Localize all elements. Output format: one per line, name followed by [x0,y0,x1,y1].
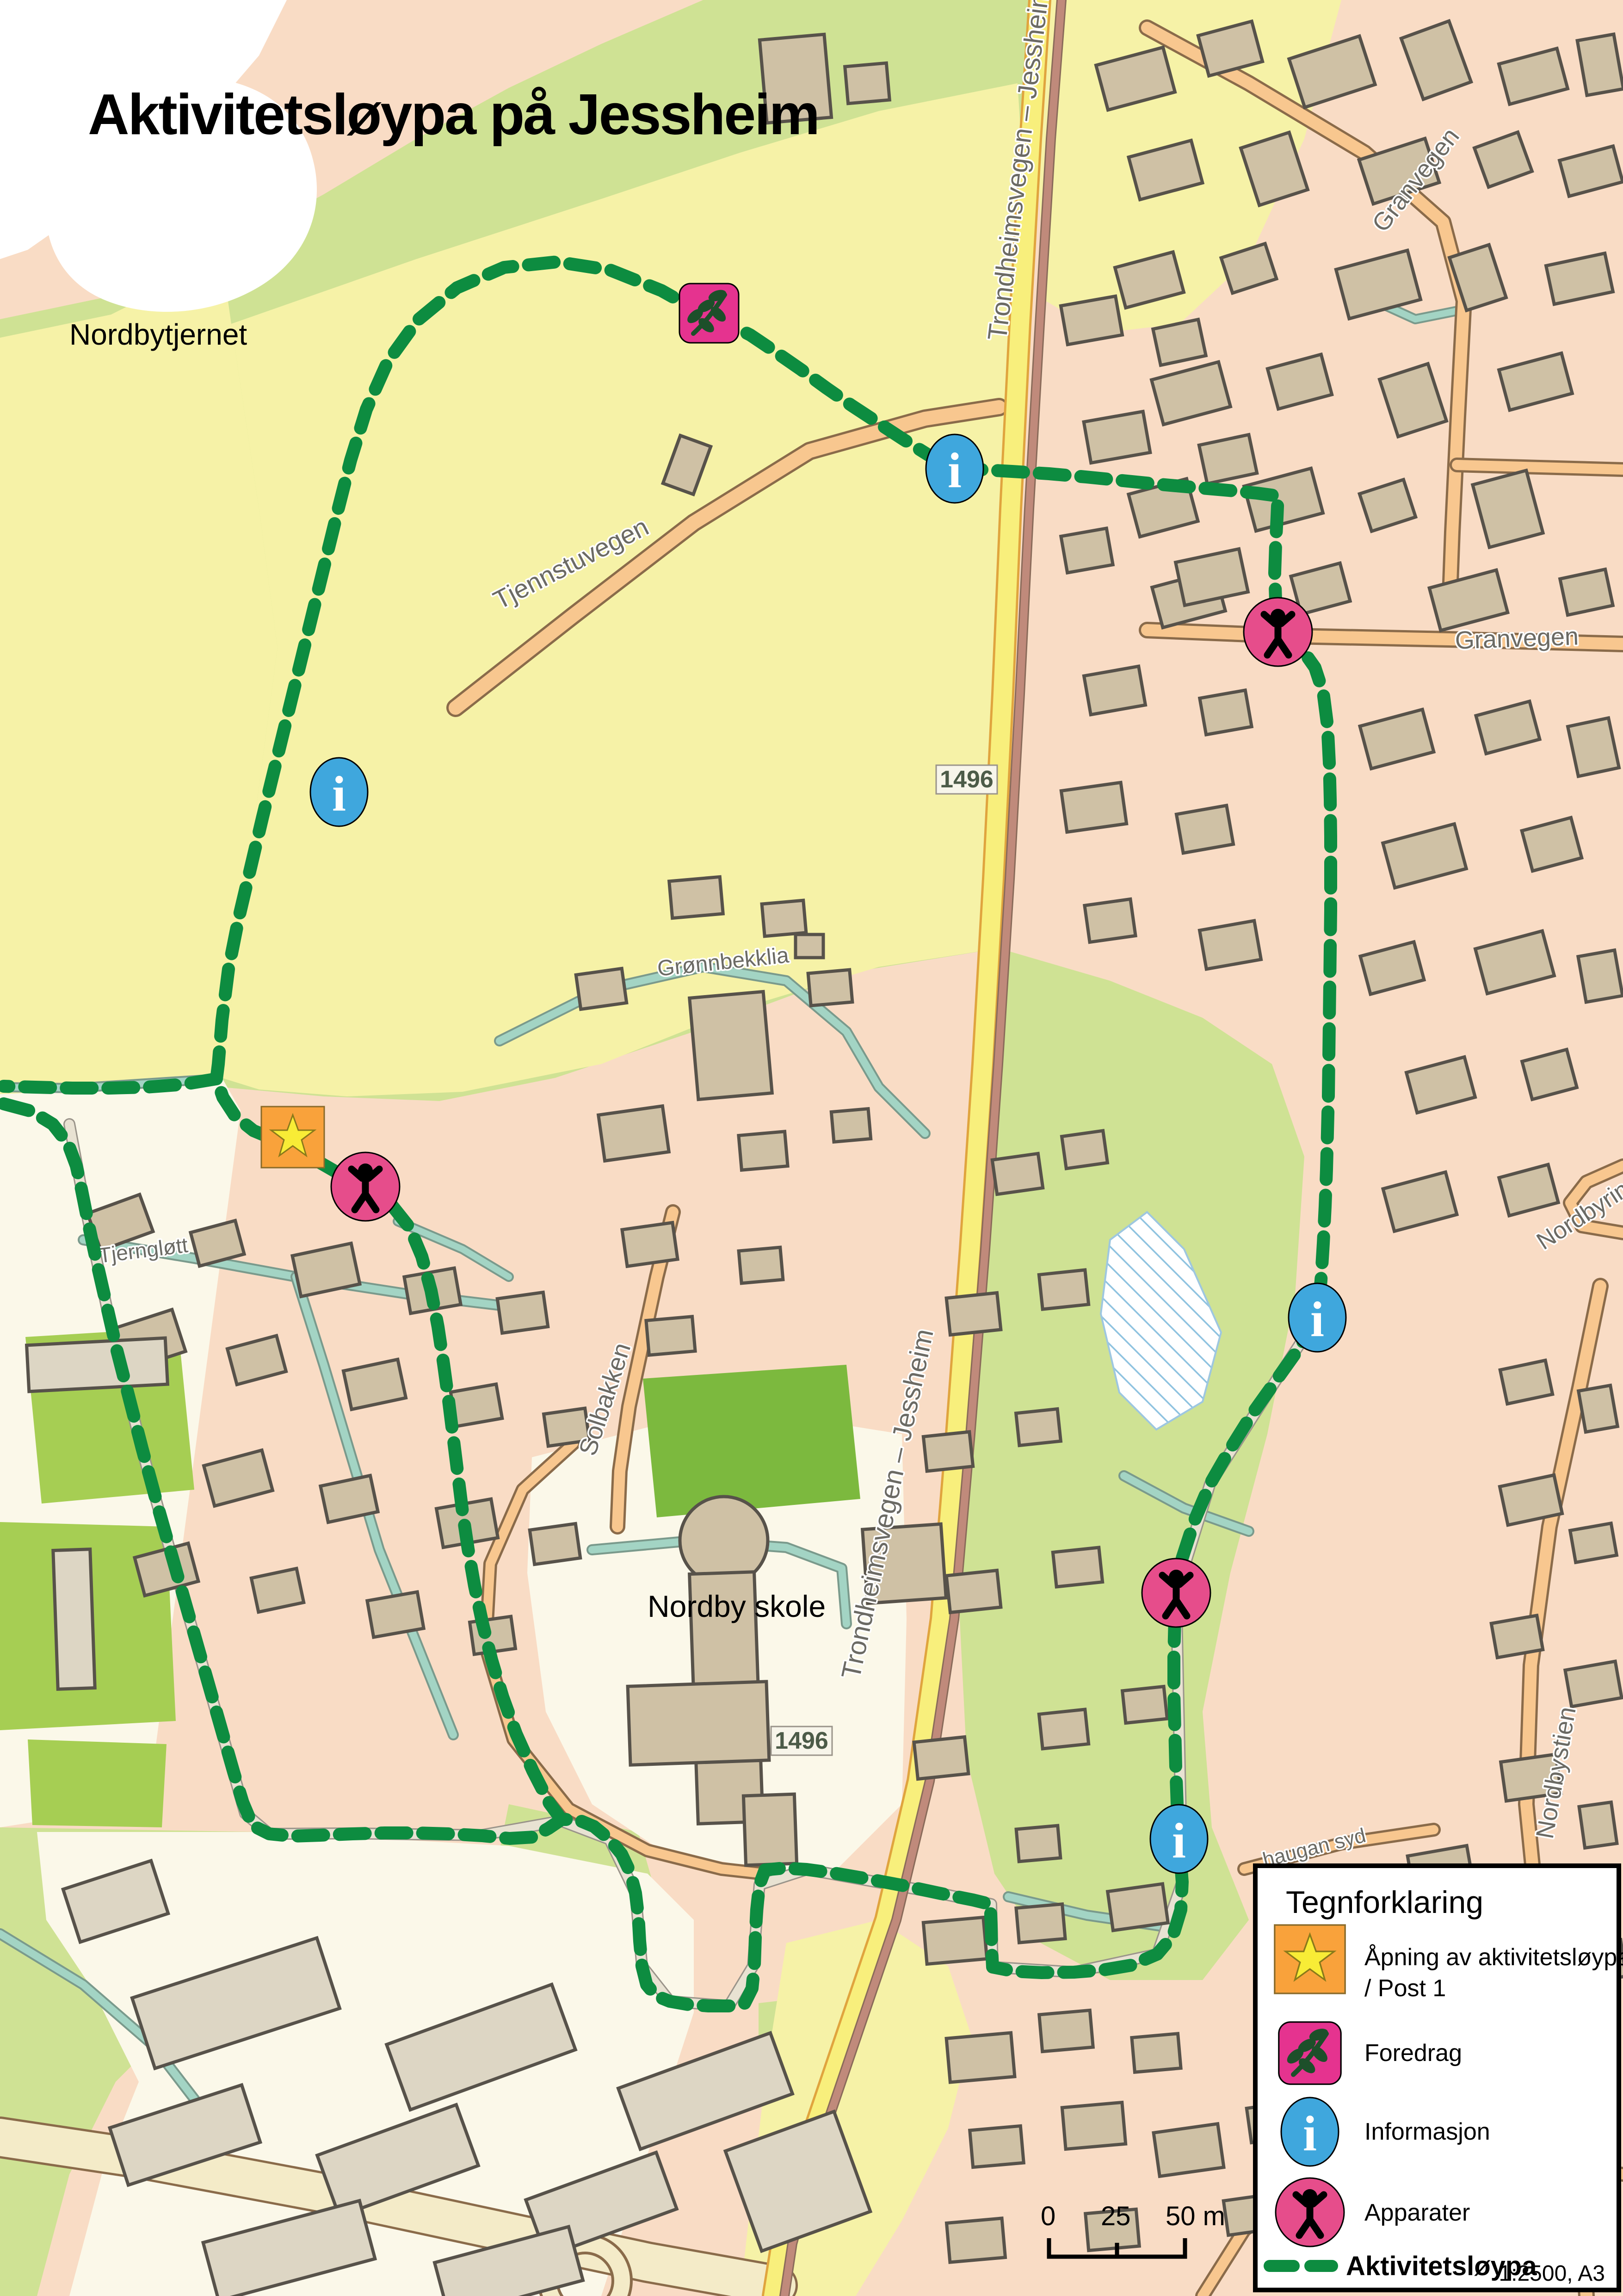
building [1084,411,1150,463]
building [1568,718,1619,776]
building [947,2218,1006,2262]
star-icon [261,1107,324,1168]
scale-25: 25 [1101,2201,1131,2231]
legend-icon-star [1275,1925,1345,1993]
legend-label-star-1: Åpning av aktivitetsløypa [1364,1944,1623,1971]
building [251,1568,303,1612]
building [1491,1615,1543,1658]
legend-label-info: Informasjon [1364,2118,1490,2145]
building [530,1523,580,1564]
legend-icon-leaf [1279,2022,1341,2084]
building [1123,1686,1167,1723]
building [1199,434,1257,483]
info-icon: i [1281,2098,1339,2166]
building [1200,921,1261,969]
leaf-icon [1279,2022,1341,2084]
building [1053,1547,1102,1587]
building [923,1918,987,1964]
legend-scale-note: 1:2500, A3 [1499,2261,1605,2286]
building [1016,1409,1061,1445]
building [646,1317,695,1355]
building [1132,2034,1181,2072]
route-number: 1496 [775,1727,828,1754]
building [1062,2103,1125,2149]
leaf-icon [679,284,739,343]
building [1062,1131,1108,1169]
building [1500,1360,1552,1404]
building [622,1223,678,1267]
building [599,1106,669,1161]
building [669,877,723,918]
building [1061,528,1113,573]
building [1061,296,1123,345]
map-page: TjennstuvegenGrønnbekkliaGranvegenGranve… [0,0,1623,2296]
building [1565,1661,1622,1707]
building [1577,34,1623,95]
building [1153,319,1206,365]
page-title: Aktivitetsløypa på Jessheim [88,83,819,147]
svg-text:i: i [948,443,962,498]
route-number: 1496 [940,766,994,793]
building [914,1737,969,1779]
legend-label-leaf: Foredrag [1364,2040,1462,2067]
svg-text:i: i [1172,1813,1186,1869]
building [1579,1386,1618,1432]
building [739,1132,788,1170]
svg-text:i: i [332,767,346,822]
person-icon [1244,598,1312,666]
legend-label-star-2: / Post 1 [1364,1975,1446,2002]
building [762,900,806,936]
star-icon [1275,1925,1345,1993]
building [739,1247,783,1283]
building [946,2033,1015,2082]
building [1579,1802,1617,1848]
info-icon: i [1289,1283,1346,1352]
building [497,1292,548,1333]
building [970,2126,1024,2167]
street-label: Granvegen [1455,622,1579,654]
building [27,1338,168,1392]
building [1176,805,1233,853]
legend-label-person: Apparater [1364,2199,1470,2226]
building [1016,1826,1061,1862]
building [1085,899,1135,942]
building [1578,950,1623,1002]
svg-text:i: i [1303,2106,1317,2161]
building [1039,1709,1088,1749]
scale-50: 50 m [1166,2201,1225,2231]
person-icon [1142,1559,1210,1627]
building [946,1570,1001,1612]
building [1039,1270,1088,1309]
building [1084,666,1146,715]
building [1570,1523,1617,1563]
building [576,968,626,1009]
info-icon: i [926,434,983,503]
school-label: Nordby skole [648,1589,826,1623]
scale-0: 0 [1041,2201,1055,2231]
svg-text:i: i [1310,1292,1324,1347]
info-icon: i [310,758,368,826]
building [923,1432,973,1471]
legend-title: Tegnforklaring [1286,1885,1483,1920]
road-orange-fill [1457,465,1623,470]
building [1016,1904,1065,1943]
building [450,1384,502,1426]
person-icon [1276,2178,1344,2246]
legend-icon-person [1276,2178,1344,2246]
lake-label: Nordbytjernet [69,318,247,351]
building [628,1682,769,1765]
person-icon [331,1152,400,1221]
area-field [643,1365,860,1517]
building [1108,1884,1168,1931]
building [1061,782,1126,832]
legend-icon-info: i [1281,2098,1339,2166]
building [1154,2124,1224,2177]
building [808,970,852,1006]
info-icon: i [1150,1805,1208,1873]
map-canvas: TjennstuvegenGrønnbekkliaGranvegenGranve… [0,0,1623,2296]
building [1200,690,1252,735]
building [992,1153,1043,1194]
building [690,991,772,1099]
building [1039,2010,1093,2051]
building [831,1109,870,1142]
building [367,1592,424,1637]
building [743,1794,796,1865]
area-meadow [28,1739,167,1827]
building [845,63,890,104]
building [796,934,823,958]
building [946,1293,1001,1335]
building [53,1549,95,1690]
building [1560,569,1613,615]
legend-panel: Tegnforklaring Åpning av aktivitetsløypa… [1255,1866,1623,2290]
